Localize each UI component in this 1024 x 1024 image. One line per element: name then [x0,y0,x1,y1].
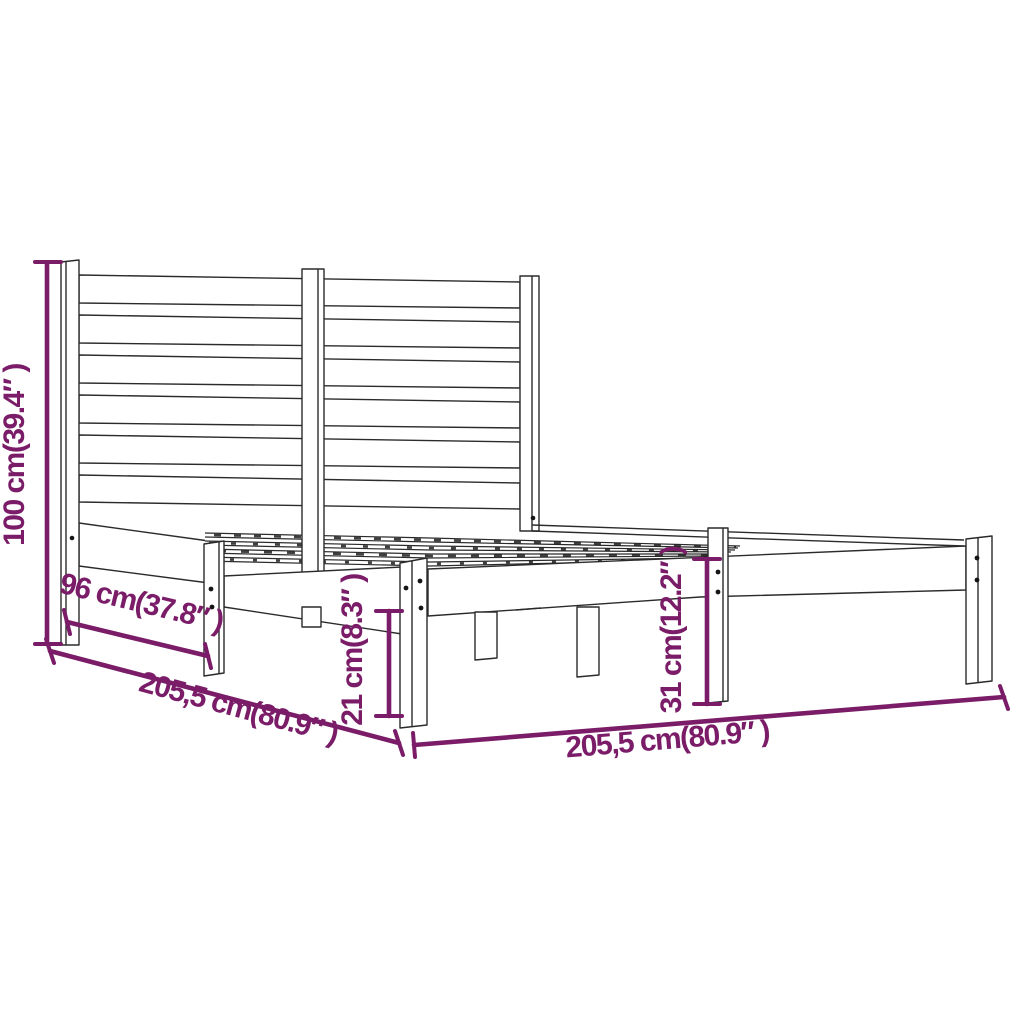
middle-post-base [302,607,321,627]
center-front-leg [708,528,728,703]
dimension-label-rail-clearance: 21 cm(8.3″ ) [336,574,369,726]
headboard-board [79,315,520,348]
dimension-label-width: 205,5 cm(80.9″ ) [136,666,342,751]
headboard-board [79,435,520,468]
support-leg [475,612,497,660]
near-corner-leg [400,558,427,728]
headboard-post-right [520,276,539,531]
headboard-post-middle [302,269,324,600]
headboard-boards [79,275,520,509]
headboard-board [79,475,520,509]
headboard-board [79,275,520,308]
dimension-label-length: 205,5 cm(80.9″ ) [564,715,770,765]
headboard-board [79,355,520,388]
dimension-label-base-height: 31 cm(12.2″ ) [655,546,688,713]
dimension-headboard-height: 100 cm(39.4″ ) [0,262,61,644]
headboard-board [79,395,520,428]
head-side-rail [79,523,209,583]
product-dimension-diagram: 100 cm(39.4″ ) 96 cm(37.8″ ) 205,5 cm(80… [0,0,1024,1024]
bed-frame-drawing: 100 cm(39.4″ ) 96 cm(37.8″ ) 205,5 cm(80… [0,0,1024,1024]
dimension-label-headboard-height: 100 cm(39.4″ ) [0,364,31,546]
support-leg [577,607,599,677]
